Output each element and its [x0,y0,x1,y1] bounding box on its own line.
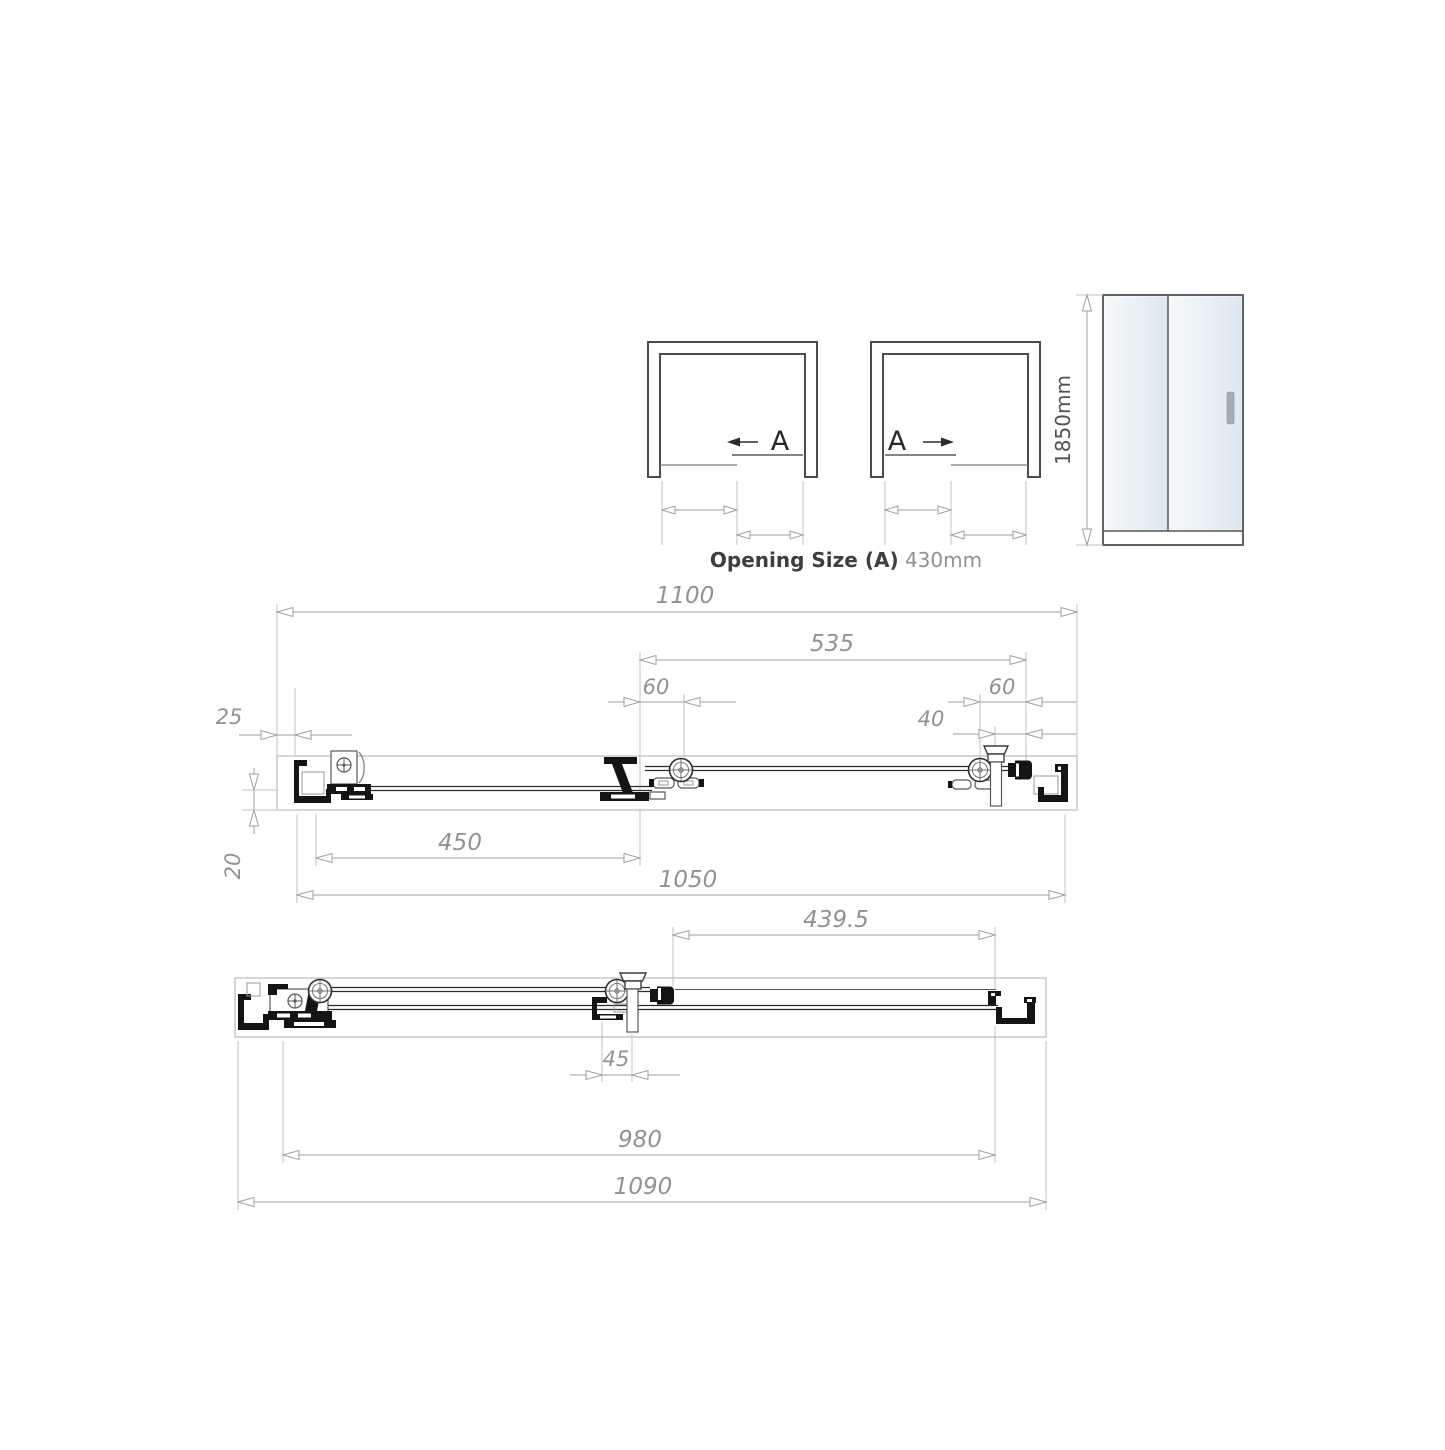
dim-top-roller-right-60: 60 [948,675,1076,707]
svg-text:45: 45 [603,1047,630,1071]
opening-diagram-slide-left: A [648,342,817,545]
dim-arrow [1083,529,1092,545]
opening-label-a-left: A [771,426,790,457]
svg-text:535: 535 [810,631,854,657]
svg-text:60: 60 [643,675,670,699]
dim-top-wall-gap-25: 25 [216,705,352,740]
roller-left [309,980,332,1003]
dim-arrow [662,506,675,514]
dim-bottom-overall-1090: 1090 [238,1041,1046,1210]
svg-text:1050: 1050 [659,867,718,893]
adjustment-screw [288,994,302,1008]
anti-jump-knob [984,746,1008,762]
dim-bottom-panel-439-5: 439.5 [673,907,995,940]
opening-size-caption: Opening Size (A) 430mm [710,548,982,572]
dim-arrow [790,531,803,539]
adjustment-screw [337,758,351,772]
dim-top-overall-1100: 1100 [277,583,1077,617]
opening-diagram-slide-right: A [871,342,1040,545]
panel-end-cap [1008,761,1032,780]
svg-text:25: 25 [216,705,243,729]
opening-size-label: Opening Size (A) [710,548,899,572]
dim-arrow [737,531,750,539]
slide-left-arrow-icon [727,438,740,447]
svg-text:450: 450 [438,830,482,856]
handle-bar-plan [627,989,638,1032]
panel-end-cap [650,987,674,1005]
svg-text:1100: 1100 [656,583,715,609]
enclosure-frame [648,342,817,477]
svg-text:60: 60 [989,675,1016,699]
svg-text:20: 20 [221,853,245,880]
dim-top-panel-535: 535 [640,631,1026,665]
svg-text:980: 980 [618,1127,662,1153]
top-plan-view: 1100 535 60 60 [216,583,1077,903]
dim-top-fixed-450: 450 [316,810,640,866]
front-elevation: 1850mm [1051,295,1243,545]
svg-text:439.5: 439.5 [803,907,869,933]
dim-arrow [938,506,951,514]
technical-drawing-page: A A Opening Size (A) 430mm [0,0,1445,1445]
dim-top-handle-40: 40 [918,707,1076,739]
svg-text:1090: 1090 [614,1174,673,1200]
opening-label-a-right: A [888,426,907,457]
glass-pane-left [1105,297,1169,531]
shower-door-technical-drawing: A A Opening Size (A) 430mm [0,0,1445,1445]
door-handle [1227,392,1234,424]
bottom-plan-view: 439.5 45 980 1090 [235,907,1046,1210]
dim-arrow [951,531,964,539]
dim-bottom-inner-980: 980 [283,1041,995,1163]
handle-bar-plan [991,762,1002,806]
svg-text:40: 40 [918,707,945,731]
dim-arrow [724,506,737,514]
roller-center [670,759,693,782]
dim-top-roller-left-60: 60 [608,675,736,707]
dim-arrow [1083,295,1092,311]
dim-arrow [885,506,898,514]
height-dim-text: 1850mm [1051,375,1075,465]
slide-right-arrow-icon [941,438,954,447]
dim-arrow [1013,531,1026,539]
